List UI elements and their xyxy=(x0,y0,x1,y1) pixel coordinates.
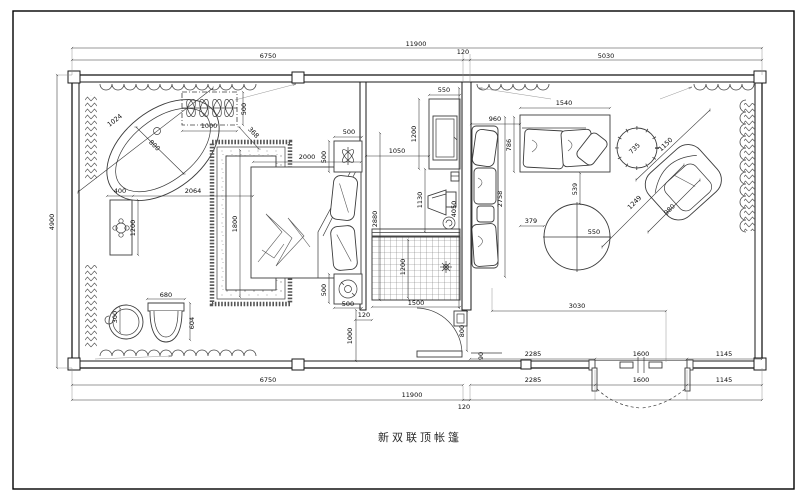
dim-bottom-b3: 1145 xyxy=(716,376,733,384)
dim-entry-w: 1000 xyxy=(346,328,354,345)
dim-bottom-a1: 2285 xyxy=(525,350,542,358)
dim-bottom-gap: 120 xyxy=(458,403,470,411)
dim-table-off-x: 379 xyxy=(525,217,537,225)
nightstand-top xyxy=(334,141,362,172)
dim-wall-gap: 120 xyxy=(358,311,370,319)
dim-table-off-y: 539 xyxy=(571,183,579,195)
floor-plan-drawing: 11900 6750 120 5030 4900 2285 1600 1145 … xyxy=(0,0,807,501)
dim-basin: 300 xyxy=(111,311,119,323)
door-leaf xyxy=(685,368,690,391)
dim-mat-w: 1500 xyxy=(408,299,425,307)
dim-console-w: 550 xyxy=(438,86,450,94)
wall-hatch-bottom-left xyxy=(85,265,97,348)
dim-door-swing: 800 xyxy=(458,325,466,337)
dim-bottom-b0: 6750 xyxy=(260,376,277,384)
sofa-wall-side xyxy=(472,126,499,268)
dim-bottom-total: 11900 xyxy=(402,391,423,399)
drawing-title: 新双联顶帐篷 xyxy=(378,430,462,444)
wall-hatch-top-left xyxy=(85,95,97,180)
dim-sofa-off: 960 xyxy=(489,115,501,123)
dim-top-seg1: 6750 xyxy=(260,52,277,60)
bed xyxy=(251,167,361,278)
dim-ns-bot-d: 500 xyxy=(320,284,328,296)
dim-left-total: 4900 xyxy=(48,214,56,231)
dim-bottom-b1: 2285 xyxy=(525,376,542,384)
sofa-top xyxy=(520,115,610,172)
bench xyxy=(372,229,460,236)
dim-toilet-w: 680 xyxy=(160,291,172,299)
dim-zone-d: 2758 xyxy=(496,191,504,208)
dim-tv-offset: 1050 xyxy=(389,147,406,155)
door-leaf xyxy=(592,368,597,391)
dim-sofa-d: 786 xyxy=(505,139,513,151)
dim-ns-top-w: 500 xyxy=(343,128,355,136)
shower-mat xyxy=(372,237,460,300)
dim-toilet-d: 604 xyxy=(188,317,196,329)
dim-sofa-w: 1540 xyxy=(556,99,573,107)
dim-aisle-len: 2880 xyxy=(371,211,379,228)
door-leaf xyxy=(417,351,462,357)
dim-ns-bot-w: 500 xyxy=(342,300,354,308)
dim-top-total: 11900 xyxy=(406,40,427,48)
dim-planter-w: 1000 xyxy=(201,122,218,130)
dim-bottom-a2: 1600 xyxy=(633,350,650,358)
dim-vanity-off: 400 xyxy=(114,187,126,195)
drawing-canvas: 11900 6750 120 5030 4900 2285 1600 1145 … xyxy=(0,0,807,501)
wall-hatch-right xyxy=(744,103,755,231)
dim-bed-len: 2000 xyxy=(299,153,316,161)
dim-jamb: 90 xyxy=(477,352,485,360)
dim-stand-len: 1130 xyxy=(416,192,424,209)
dim-bottom-a3: 1145 xyxy=(716,350,733,358)
wall-bracket xyxy=(451,172,459,181)
dim-wall-len: 4050 xyxy=(450,201,458,218)
dim-top-gap: 120 xyxy=(457,48,469,56)
dim-table-r: 550 xyxy=(588,228,600,236)
sofa-arm xyxy=(477,206,494,222)
dim-top-seg2: 5030 xyxy=(598,52,615,60)
sofa-pillow xyxy=(472,129,499,168)
dim-planter-d: 500 xyxy=(240,103,248,115)
dim-vanity-len: 1200 xyxy=(129,220,137,237)
sofa-cushion xyxy=(523,129,565,169)
tv-console xyxy=(429,99,460,169)
dim-mat-len: 1200 xyxy=(399,259,407,276)
dim-console-len: 1200 xyxy=(410,126,418,143)
dim-rug-off: 2064 xyxy=(185,187,202,195)
dim-zone-w: 3030 xyxy=(569,302,586,310)
dim-rug-w: 1800 xyxy=(231,216,239,233)
tv-screen xyxy=(433,116,457,160)
dim-ns-top-d: 500 xyxy=(320,151,328,163)
dim-bottom-b2: 1600 xyxy=(633,376,650,384)
